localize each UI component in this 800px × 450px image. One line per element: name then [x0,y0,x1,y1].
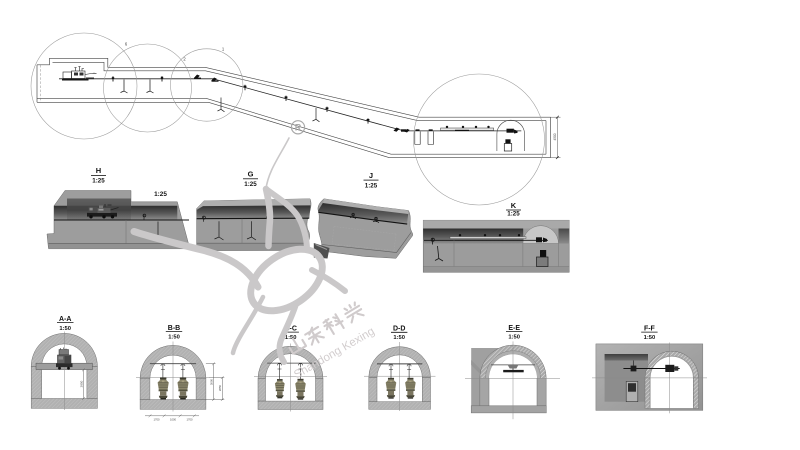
svg-text:1:25: 1:25 [92,178,105,185]
svg-text:G: G [248,170,254,179]
svg-text:1:25: 1:25 [507,210,520,217]
svg-text:1:50: 1:50 [393,335,405,341]
svg-text:2850: 2850 [80,380,84,387]
svg-text:1700: 1700 [154,417,160,421]
svg-text:3000: 3000 [209,378,213,385]
svg-text:A-A: A-A [59,316,71,323]
svg-text:2: 2 [183,57,186,62]
svg-text:K: K [511,201,517,210]
svg-text:2850: 2850 [218,384,222,391]
svg-text:B-B: B-B [168,325,180,332]
svg-text:1700: 1700 [187,417,193,421]
svg-text:4500: 4500 [553,133,557,140]
svg-text:1:25: 1:25 [244,181,257,188]
svg-text:1:50: 1:50 [508,334,520,340]
svg-text:1:25: 1:25 [154,191,167,198]
svg-text:R: R [295,123,302,133]
svg-text:1:50: 1:50 [644,335,656,341]
svg-text:H: H [96,166,101,175]
svg-text:1: 1 [222,47,225,52]
svg-text:1:25: 1:25 [365,183,378,190]
svg-text:1:50: 1:50 [168,334,180,340]
svg-text:D-D: D-D [393,326,405,333]
svg-text:1:50: 1:50 [59,326,71,332]
svg-text:E-E: E-E [508,325,520,332]
svg-text:F-F: F-F [644,325,656,332]
svg-text:J: J [369,171,373,180]
svg-text:1000: 1000 [170,417,176,421]
svg-text:6: 6 [125,42,128,47]
